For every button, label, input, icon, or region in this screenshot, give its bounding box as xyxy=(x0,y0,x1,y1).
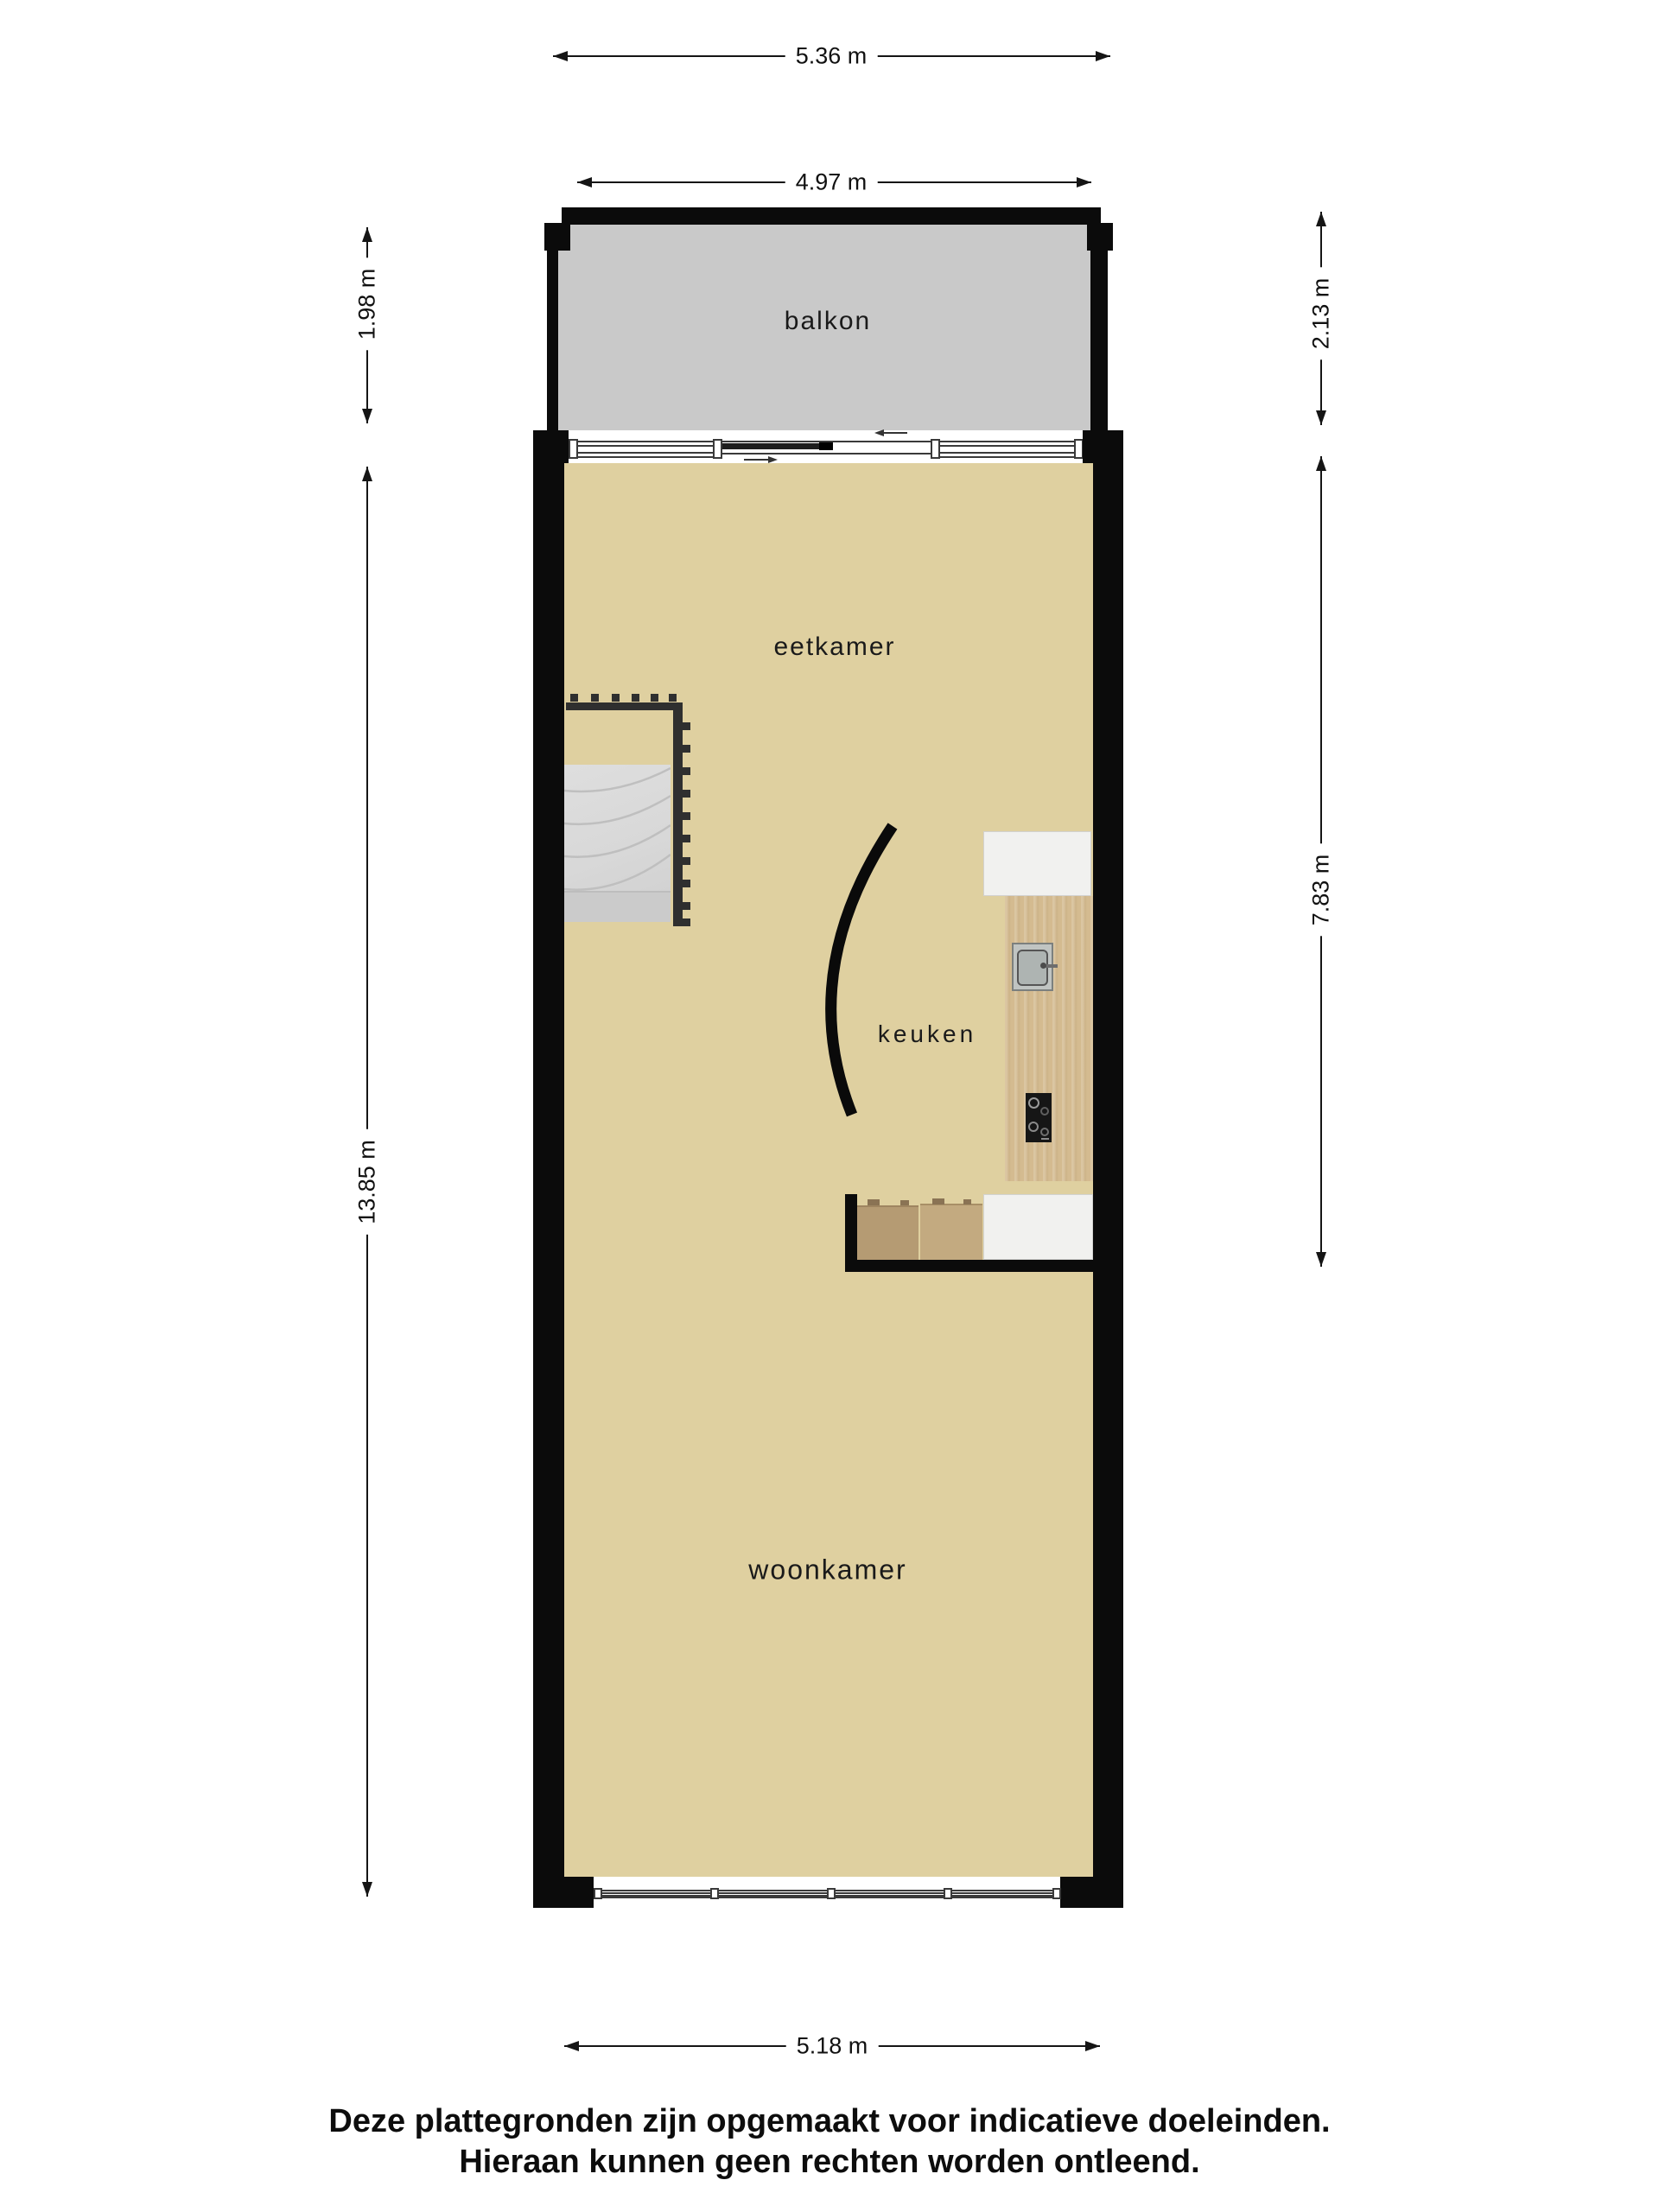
apartment-wall-left xyxy=(533,447,564,1908)
railing-post xyxy=(651,694,658,702)
apartment-wall-corner-bottom-left xyxy=(533,1877,594,1908)
window-mullion xyxy=(931,439,940,459)
dim-label-balcony-outer: 5.36 m xyxy=(785,40,878,73)
dim-label-balcony-depth-left: 1.98 m xyxy=(351,258,385,351)
dim-arrow-icon xyxy=(577,177,592,188)
balcony-wall-top xyxy=(562,207,1101,225)
dim-label-apartment-height: 13.85 m xyxy=(351,1129,385,1235)
dim-arrow-icon xyxy=(362,409,372,423)
dim-label-kitchen-zone: 7.83 m xyxy=(1305,844,1338,937)
apartment-wall-corner-bottom-right xyxy=(1060,1877,1123,1908)
balcony-wall-left xyxy=(547,249,558,432)
slide-left-arrow-icon xyxy=(883,432,907,434)
dim-arrow-icon xyxy=(362,467,372,481)
railing-post xyxy=(683,812,690,820)
apartment-wall-right xyxy=(1093,447,1123,1908)
window-line xyxy=(577,445,713,447)
dim-arrow-icon xyxy=(553,51,568,61)
dim-label-balcony-inner: 4.97 m xyxy=(785,166,878,200)
dim-arrow-icon xyxy=(362,227,372,242)
railing-post xyxy=(683,902,690,910)
window-line xyxy=(577,441,713,442)
cabinet-handle-icon xyxy=(900,1200,909,1205)
dim-arrow-icon xyxy=(1316,1252,1326,1267)
room-label-woonkamer: woonkamer xyxy=(748,1554,906,1586)
railing-post xyxy=(683,745,690,753)
window-mullion xyxy=(1052,1888,1061,1899)
slide-left-arrowhead-icon xyxy=(874,429,884,436)
railing-post xyxy=(612,694,620,702)
railing-post xyxy=(683,918,690,926)
curved-kitchen-wall xyxy=(782,812,907,1128)
window-mullion xyxy=(710,1888,719,1899)
dim-arrow-icon xyxy=(564,2041,579,2051)
railing-post xyxy=(683,857,690,865)
balcony-wall-right xyxy=(1090,249,1108,432)
stair-railing-vertical xyxy=(673,702,683,926)
dim-arrow-icon xyxy=(1316,410,1326,425)
balcony-wall-step-left xyxy=(544,223,570,251)
railing-post xyxy=(591,694,599,702)
balcony-wall-step-right xyxy=(1087,223,1113,251)
cooktop-controls xyxy=(1041,1138,1049,1140)
burner-icon xyxy=(1040,1107,1049,1116)
window-mullion xyxy=(713,439,722,459)
railing-post xyxy=(683,767,690,775)
railing-post xyxy=(632,694,639,702)
slide-right-arrow-icon xyxy=(744,459,768,461)
cabinet-handle-icon xyxy=(963,1199,971,1205)
dim-label-balcony-depth-right: 2.13 m xyxy=(1305,268,1338,360)
room-label-eetkamer: eetkamer xyxy=(773,632,895,662)
disclaimer-line-1: Deze plattegronden zijn opgemaakt voor i… xyxy=(0,2101,1659,2142)
dim-arrow-icon xyxy=(1316,212,1326,226)
railing-post xyxy=(683,880,690,887)
dim-arrow-icon xyxy=(1096,51,1110,61)
kitchen-faucet-handle-icon xyxy=(1040,963,1046,969)
disclaimer: Deze plattegronden zijn opgemaakt voor i… xyxy=(0,2101,1659,2183)
railing-post xyxy=(669,694,677,702)
room-label-balkon: balkon xyxy=(785,307,871,336)
railing-post xyxy=(683,722,690,730)
window-mullion xyxy=(944,1888,952,1899)
disclaimer-line-2: Hieraan kunnen geen rechten worden ontle… xyxy=(0,2142,1659,2183)
sliding-door-panel xyxy=(721,443,832,449)
window-mullion xyxy=(569,439,578,459)
floor-plan-canvas: balkon xyxy=(0,0,1659,2212)
window-line xyxy=(577,452,713,454)
sliding-door-panel-edge xyxy=(819,442,833,450)
railing-post xyxy=(570,694,578,702)
kitchen-partition-wall xyxy=(845,1260,1093,1272)
window-line xyxy=(940,445,1074,447)
stair-railing-horizontal xyxy=(566,702,683,710)
burner-icon xyxy=(1040,1128,1049,1136)
dim-arrow-icon xyxy=(1077,177,1091,188)
cabinet-handle-icon xyxy=(932,1198,944,1205)
burner-icon xyxy=(1028,1097,1039,1109)
kitchen-counter-white-top xyxy=(983,831,1091,896)
window-line xyxy=(577,456,713,458)
dim-arrow-icon xyxy=(362,1882,372,1897)
window-line xyxy=(940,456,1074,458)
staircase xyxy=(564,765,671,922)
window-mullion xyxy=(827,1888,836,1899)
burner-icon xyxy=(1028,1122,1039,1132)
railing-post xyxy=(683,835,690,842)
window-mullion xyxy=(594,1888,602,1899)
dim-arrow-icon xyxy=(1316,456,1326,471)
kitchen-cabinet-right xyxy=(920,1204,982,1260)
stair-treads xyxy=(564,765,671,922)
dim-label-apartment-width: 5.18 m xyxy=(786,2030,879,2063)
slide-right-arrowhead-icon xyxy=(768,456,778,463)
window-line xyxy=(940,452,1074,454)
cabinet-handle-icon xyxy=(868,1199,880,1205)
kitchen-cabinet-left xyxy=(857,1205,918,1260)
sliding-door-track-bottom xyxy=(721,453,931,454)
kitchen-cooktop xyxy=(1026,1093,1052,1142)
window-line xyxy=(940,441,1074,442)
room-label-keuken: keuken xyxy=(878,1020,976,1048)
railing-post xyxy=(683,790,690,798)
dim-arrow-icon xyxy=(1085,2041,1100,2051)
kitchen-counter-white-bottom xyxy=(983,1194,1093,1260)
